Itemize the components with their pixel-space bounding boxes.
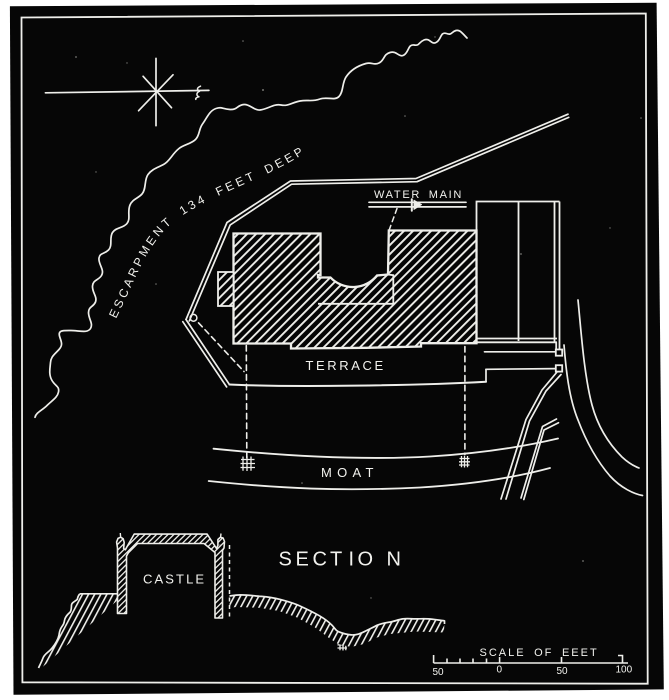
svg-text:50: 50 — [433, 667, 445, 678]
svg-text:SCALE OF EEET: SCALE OF EEET — [480, 647, 599, 659]
svg-text:WATER MAIN: WATER MAIN — [374, 189, 463, 201]
svg-text:CASTLE: CASTLE — [143, 572, 206, 587]
svg-text:0: 0 — [497, 665, 503, 676]
svg-text:TERRACE: TERRACE — [306, 358, 386, 373]
svg-text:50: 50 — [557, 666, 569, 677]
svg-text:100: 100 — [616, 665, 633, 676]
svg-text:MOAT: MOAT — [321, 465, 379, 480]
